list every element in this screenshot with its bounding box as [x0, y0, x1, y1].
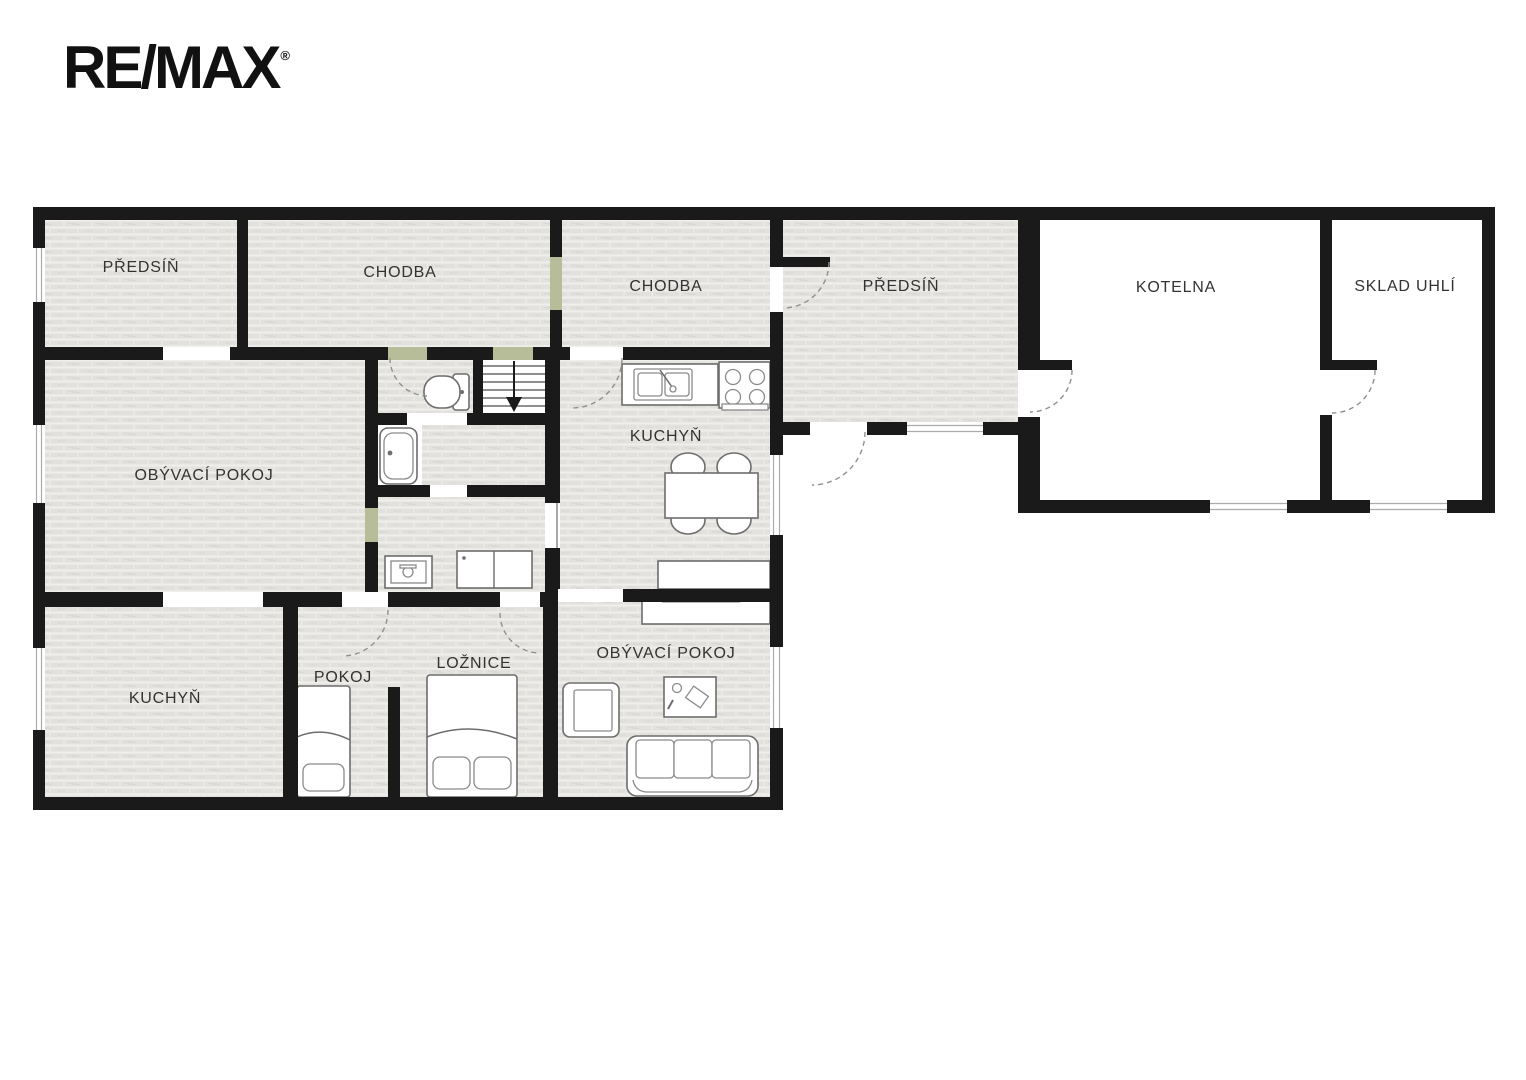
washing-machine-icon: [385, 556, 432, 588]
stove-icon: [719, 362, 770, 410]
bathtub-icon: [380, 428, 417, 484]
wall: [473, 358, 483, 413]
window: [770, 647, 783, 728]
wall: [540, 592, 558, 607]
single-bed-icon: [297, 686, 350, 797]
wall: [1018, 207, 1040, 360]
room-label-obyvaci-pokoj-1: OBÝVACÍ POKOJ: [134, 465, 273, 484]
window: [33, 425, 45, 503]
kitchen-sink-icon: [622, 364, 718, 405]
cabinet-icon: [457, 551, 532, 588]
wall: [33, 592, 163, 607]
doorway: [342, 592, 388, 607]
doorway: [1018, 370, 1040, 417]
door-accent: [388, 347, 427, 360]
sideboard-icon: [658, 561, 770, 589]
wall: [776, 422, 810, 435]
floor-plan: PŘEDSÍŇ CHODBA CHODBA PŘEDSÍŇ KOTELNA SK…: [0, 0, 1526, 1080]
wall: [545, 548, 560, 592]
wall: [1482, 207, 1495, 513]
wall: [33, 302, 45, 425]
doorway: [430, 485, 467, 497]
wall: [550, 310, 562, 352]
wall: [550, 220, 562, 257]
window: [33, 648, 45, 730]
room-label-kuchyn-2: KUCHYŇ: [129, 688, 201, 707]
wall: [1320, 360, 1377, 370]
wall: [427, 347, 493, 360]
wall: [283, 607, 298, 797]
wall: [1320, 220, 1332, 360]
wall: [867, 422, 907, 435]
wall: [770, 535, 783, 647]
wall: [388, 592, 500, 607]
wall: [230, 347, 388, 360]
floor-entry-hall: [770, 207, 1018, 435]
doorway: [558, 589, 623, 602]
wall: [623, 589, 770, 602]
wall: [365, 352, 378, 508]
room-label-pokoj: POKOJ: [314, 669, 372, 686]
wall: [365, 413, 407, 425]
wall: [770, 257, 830, 267]
wall: [543, 607, 558, 797]
wall: [1287, 500, 1370, 513]
doorway: [407, 413, 467, 425]
doorway: [770, 267, 783, 312]
door-accent: [365, 508, 378, 542]
toilet-icon: [424, 374, 469, 410]
doorway: [810, 422, 867, 435]
room-label-loznice: LOŽNICE: [437, 653, 512, 672]
room-label-predsin-1: PŘEDSÍŇ: [103, 257, 180, 276]
room-label-chodba-1: CHODBA: [363, 264, 436, 281]
wall: [45, 347, 163, 360]
wall: [1320, 415, 1332, 513]
room-label-predsin-2: PŘEDSÍŇ: [863, 276, 940, 295]
doorway: [163, 347, 230, 360]
wall: [33, 207, 1495, 220]
doorway: [570, 347, 623, 360]
wall: [365, 542, 378, 595]
wall: [263, 592, 342, 607]
wall: [365, 485, 430, 497]
wall: [770, 728, 783, 810]
door-accent: [550, 257, 562, 310]
wall: [1018, 500, 1210, 513]
doorway: [500, 592, 540, 607]
wall: [33, 207, 45, 248]
armchair-icon: [563, 683, 619, 737]
window: [1210, 500, 1287, 513]
wall: [1018, 360, 1072, 370]
wall: [237, 220, 248, 347]
wall: [983, 422, 1020, 435]
window: [770, 455, 783, 535]
window: [907, 422, 983, 435]
wall: [33, 503, 45, 648]
room-label-obyvaci-pokoj-2: OBÝVACÍ POKOJ: [596, 643, 735, 662]
sofa-icon: [627, 736, 758, 796]
window: [33, 248, 45, 302]
room-label-sklad-uhli: SKLAD UHLÍ: [1354, 276, 1455, 295]
wall: [545, 347, 560, 503]
room-label-kotelna: KOTELNA: [1136, 279, 1216, 296]
wall: [1018, 417, 1040, 513]
room-label-chodba-2: CHODBA: [629, 278, 702, 295]
room-label-kuchyn-1: KUCHYŇ: [630, 426, 702, 445]
wall: [1447, 500, 1495, 513]
wall: [33, 797, 783, 810]
door-accent: [493, 347, 533, 360]
door-arc: [812, 432, 865, 485]
doorway: [163, 592, 263, 607]
wall: [623, 347, 770, 360]
desk-icon: [664, 677, 716, 717]
double-bed-icon: [427, 675, 517, 797]
door-arc: [1332, 370, 1375, 413]
wall: [388, 687, 400, 797]
doorway: [1320, 370, 1332, 415]
floor-texture: [33, 207, 1018, 810]
window: [1370, 500, 1447, 513]
